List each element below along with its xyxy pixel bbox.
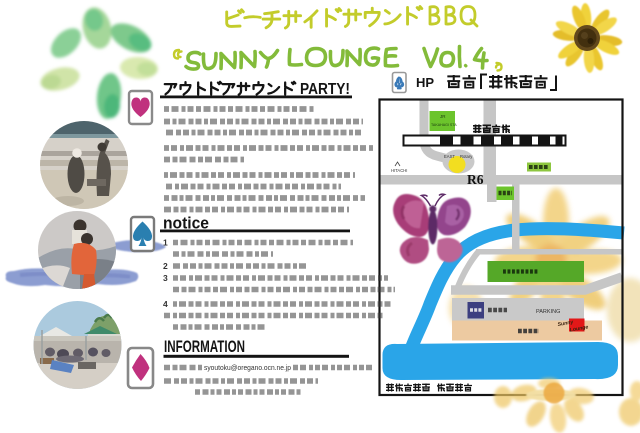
svg-text:2: 2 (163, 261, 168, 271)
svg-text:1: 1 (163, 238, 168, 248)
svg-text:PARTY!: PARTY! (300, 81, 350, 98)
svg-text:3: 3 (163, 273, 168, 283)
svg-text:EAST: EAST (444, 154, 455, 159)
svg-text:HITACHI: HITACHI (391, 168, 407, 173)
svg-text:4: 4 (163, 299, 168, 309)
svg-text:HP: HP (416, 75, 434, 90)
svg-text:TAKAHAGI STA: TAKAHAGI STA (431, 123, 457, 127)
svg-text:R6: R6 (467, 172, 484, 187)
svg-text:syoutoku@oregano.ocn.ne.jp: syoutoku@oregano.ocn.ne.jp (204, 363, 291, 372)
svg-text:JR: JR (440, 114, 446, 119)
svg-text:PARKING: PARKING (536, 309, 560, 315)
svg-text:INFORMATION: INFORMATION (164, 338, 245, 356)
svg-text:Rotary: Rotary (460, 154, 473, 159)
